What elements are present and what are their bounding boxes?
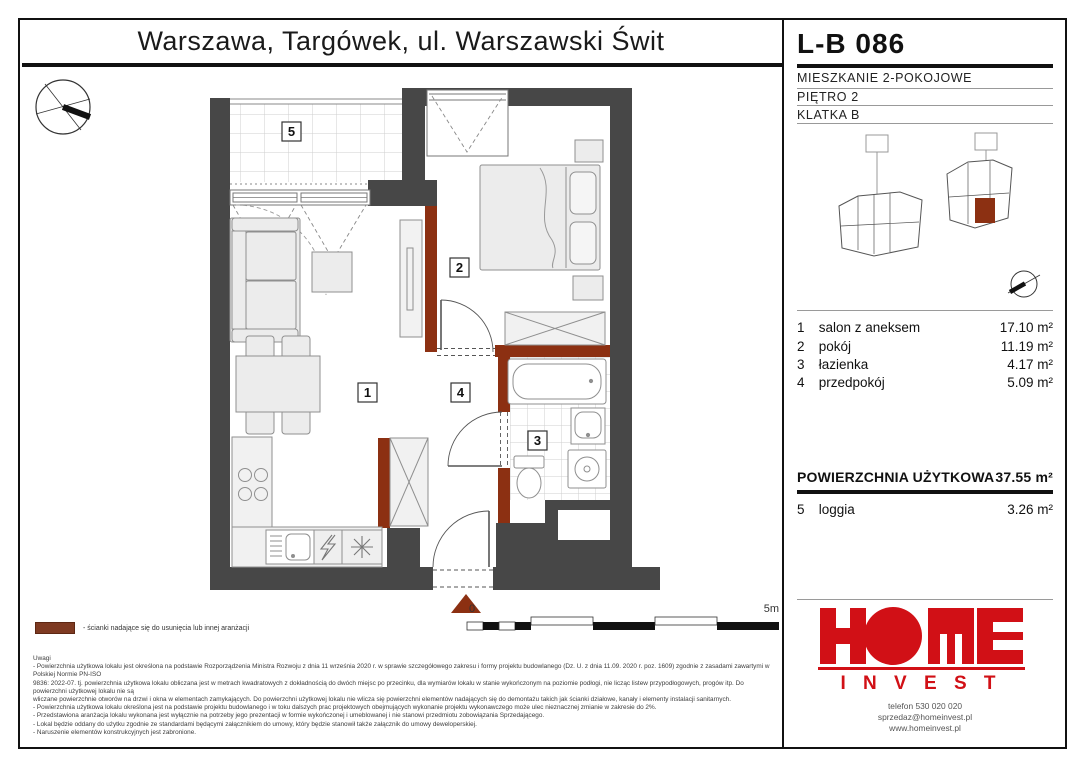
table-row: 3 łazienka 4.17 m² [797, 357, 1053, 372]
title-rule [22, 63, 782, 67]
unit-id-rule [797, 64, 1053, 68]
table-row: 1 salon z aneksem 17.10 m² [797, 320, 1053, 335]
floorplan-sheet: { "page": { "title": "Warszawa, Targówek… [0, 0, 1087, 768]
notes-block: Uwagi - Powierzchnia użytkowa lokalu jes… [33, 655, 770, 737]
room-num: 1 [797, 320, 815, 335]
legend-text: - ścianki nadające się do usunięcia lub … [83, 625, 249, 632]
contact-block: telefon 530 020 020 sprzedaz@homeinvest.… [797, 701, 1053, 734]
unit-type: MIESZKANIE 2-POKOJOWE [797, 71, 1053, 85]
logo-top-rule [797, 599, 1053, 600]
total-area-label: POWIERZCHNIA UŻYTKOWA [797, 469, 994, 485]
room-area: 17.10 m² [1000, 320, 1053, 335]
table-top-rule [797, 310, 1053, 311]
panel-divider [782, 20, 784, 747]
unit-staircase: KLATKA B [797, 108, 1053, 122]
rule-2 [797, 105, 1053, 106]
contact-email: sprzedaz@homeinvest.pl [797, 712, 1053, 723]
rule-3 [797, 123, 1053, 124]
note-line: - Przedstawiona aranżacja lokalu wykonan… [33, 712, 770, 720]
total-area-rule [797, 490, 1053, 494]
room-name: loggia [819, 502, 855, 517]
room-num: 3 [797, 357, 815, 372]
page-title: Warszawa, Targówek, ul. Warszawski Świt [22, 26, 780, 57]
unit-floor: PIĘTRO 2 [797, 90, 1053, 104]
room-name: łazienka [819, 357, 869, 372]
room-area: 3.26 m² [1007, 502, 1053, 517]
total-area-value: 37.55 m² [995, 469, 1053, 485]
table-row: 4 przedpokój 5.09 m² [797, 375, 1053, 390]
unit-id: L-B 086 [797, 28, 905, 60]
loggia-row: 5 loggia 3.26 m² [797, 502, 1053, 517]
note-line: - Powierzchnia użytkowa lokalu określona… [33, 704, 770, 712]
note-line: 9836: 2022-07. tj. powierzchnia użytkowa… [33, 680, 770, 696]
room-area: 5.09 m² [1007, 375, 1053, 390]
total-area-row: POWIERZCHNIA UŻYTKOWA 37.55 m² [797, 469, 1053, 485]
note-line: - Lokal będzie oddany do użytku zgodnie … [33, 721, 770, 729]
room-area: 4.17 m² [1007, 357, 1053, 372]
table-row: 2 pokój 11.19 m² [797, 339, 1053, 354]
removable-wall-swatch [35, 622, 75, 634]
notes-title: Uwagi [33, 655, 770, 663]
note-line: - Powierzchnia użytkowa lokalu jest okre… [33, 663, 770, 679]
room-area: 11.19 m² [1001, 339, 1053, 354]
room-name: pokój [819, 339, 851, 354]
room-name: salon z aneksem [819, 320, 920, 335]
legend: - ścianki nadające się do usunięcia lub … [35, 622, 249, 634]
room-num: 5 [797, 502, 815, 517]
note-line: - Naruszenie elementów konstrukcyjnych j… [33, 729, 770, 737]
room-num: 2 [797, 339, 815, 354]
room-name: przedpokój [819, 375, 885, 390]
note-line: wliczane powierzchnie otworów na drzwi i… [33, 696, 770, 704]
room-num: 4 [797, 375, 815, 390]
contact-phone: telefon 530 020 020 [797, 701, 1053, 712]
rule-1 [797, 88, 1053, 89]
contact-web: www.homeinvest.pl [797, 723, 1053, 734]
